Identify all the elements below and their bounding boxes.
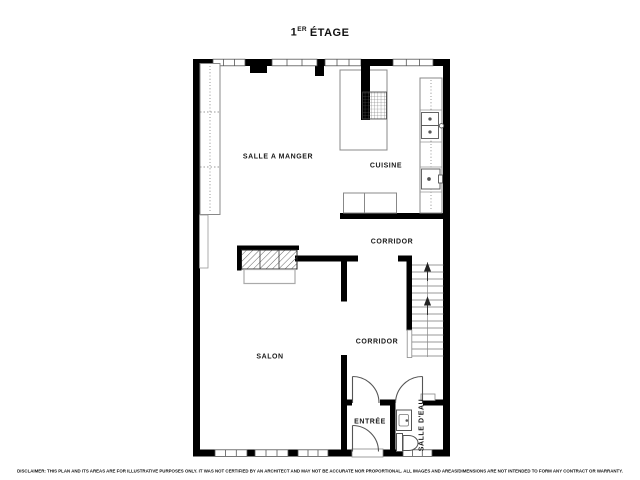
window (298, 450, 328, 457)
disclaimer-text: DISCLAIMER: THIS PLAN AND ITS AREAS ARE … (17, 470, 623, 474)
floor-plan-page: { "title": { "number": "1", "ordinal": "… (0, 0, 640, 480)
room-label-corridor-lower: CORRIDOR (356, 339, 399, 346)
stove-icon (363, 92, 387, 119)
window (325, 59, 361, 66)
window (215, 450, 247, 457)
room-label-salle-a-manger: SALLE A MANGER (243, 154, 313, 161)
room-label-entree: ENTRÉE (354, 419, 386, 426)
faucet (439, 124, 443, 128)
wall-pillar (250, 66, 267, 73)
room-label-corridor-upper: CORRIDOR (371, 239, 414, 246)
stairs (407, 262, 443, 401)
stair-stringer (407, 330, 412, 358)
fireplace (237, 246, 299, 284)
room-label-salon: SALON (256, 354, 283, 361)
oven-icon (422, 169, 443, 189)
kitchen-counter-right (420, 78, 444, 213)
wall-pillar (315, 66, 324, 76)
floor-plan-canvas (0, 0, 640, 480)
bathroom-fixtures (397, 410, 419, 452)
kitchen-island (340, 59, 387, 150)
window (393, 59, 433, 66)
window (272, 59, 317, 66)
washbasin-icon (397, 410, 412, 431)
hearth (244, 270, 295, 284)
door-front (353, 426, 379, 452)
room-label-cuisine: CUISINE (370, 163, 402, 170)
window (255, 450, 288, 457)
door-entree (353, 377, 380, 404)
shelf (200, 215, 209, 268)
kitchen-low-counters (344, 193, 397, 213)
toilet-icon (397, 434, 419, 452)
room-label-salle-deau: SALLE D'EAU (419, 399, 426, 451)
dining-counter (200, 64, 221, 269)
